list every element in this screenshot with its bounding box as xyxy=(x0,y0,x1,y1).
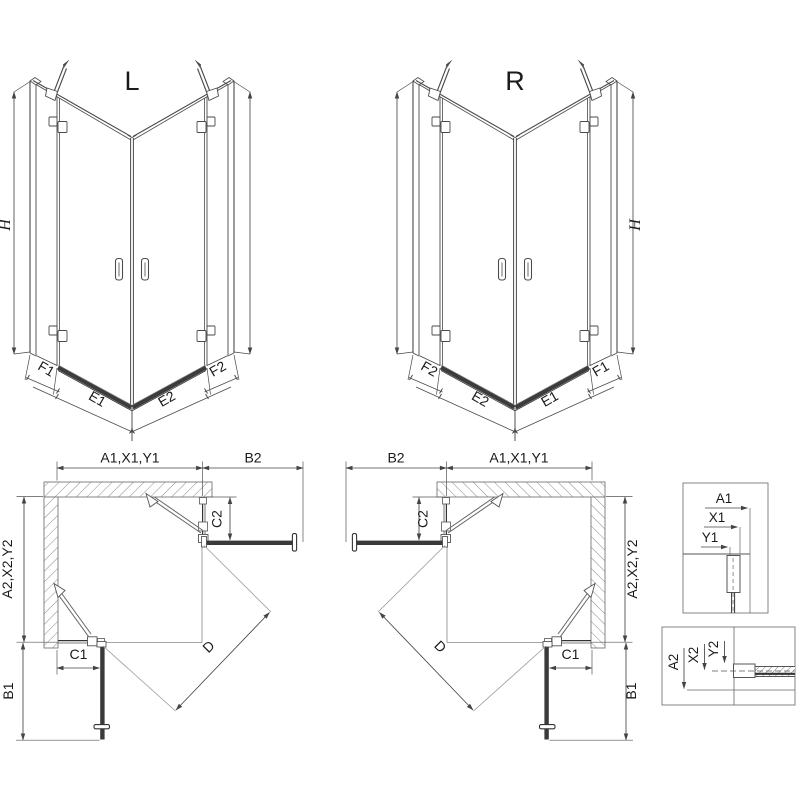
plan-right-dim-c1: C1 xyxy=(562,646,580,662)
iso-left-dim-f2: F2 xyxy=(206,358,228,380)
iso-view-right-linework xyxy=(397,60,633,442)
plan-left-dim-b1: B1 xyxy=(0,682,16,699)
plan-right-dim-c2: C2 xyxy=(415,510,431,528)
plan-left-dim-b2: B2 xyxy=(244,450,261,466)
plan-left-dim-a2x2y2: A2,X2,Y2 xyxy=(0,539,15,598)
iso-left-title: L xyxy=(124,66,139,96)
detail-bottom-label-y2: Y2 xyxy=(706,641,721,658)
detail-top-label-x1: X1 xyxy=(709,510,726,525)
detail-bottom-label-a2: A2 xyxy=(666,654,681,671)
iso-left-height-label: H xyxy=(0,218,14,232)
detail-bottom-label-x2: X2 xyxy=(686,647,701,664)
detail-top-label-y1: Y1 xyxy=(702,530,719,545)
plan-view-right-linework xyxy=(346,462,633,741)
iso-left-dim-f1: F1 xyxy=(35,358,57,380)
plan-right-dim-b1: B1 xyxy=(623,682,639,699)
detail-top-label-a1: A1 xyxy=(716,491,733,506)
plan-left-dim-c1: C1 xyxy=(70,646,88,662)
iso-right-dim-f2: F2 xyxy=(418,358,440,380)
iso-right-height-label: H xyxy=(627,218,644,232)
plan-view-left-linework xyxy=(16,462,303,741)
iso-right-dim-f1: F1 xyxy=(589,358,611,380)
plan-right-dim-b2: B2 xyxy=(387,450,404,466)
drawing-canvas: L H F1 E1 E2 F2 R H F2 E2 E1 F1 A1,X1,Y1… xyxy=(0,0,800,800)
detail-box-bottom xyxy=(662,627,795,705)
plan-left-dim-c2: C2 xyxy=(209,510,225,528)
plan-right-dim-a1x1y1: A1,X1,Y1 xyxy=(489,450,548,466)
shower-enclosure-technical-drawing: L H F1 E1 E2 F2 R H F2 E2 E1 F1 A1,X1,Y1… xyxy=(0,0,800,800)
iso-right-title: R xyxy=(505,66,525,96)
plan-right-dim-a2x2y2: A2,X2,Y2 xyxy=(624,539,640,598)
iso-view-left-linework xyxy=(14,60,250,442)
plan-left-dim-a1x1y1: A1,X1,Y1 xyxy=(100,450,159,466)
